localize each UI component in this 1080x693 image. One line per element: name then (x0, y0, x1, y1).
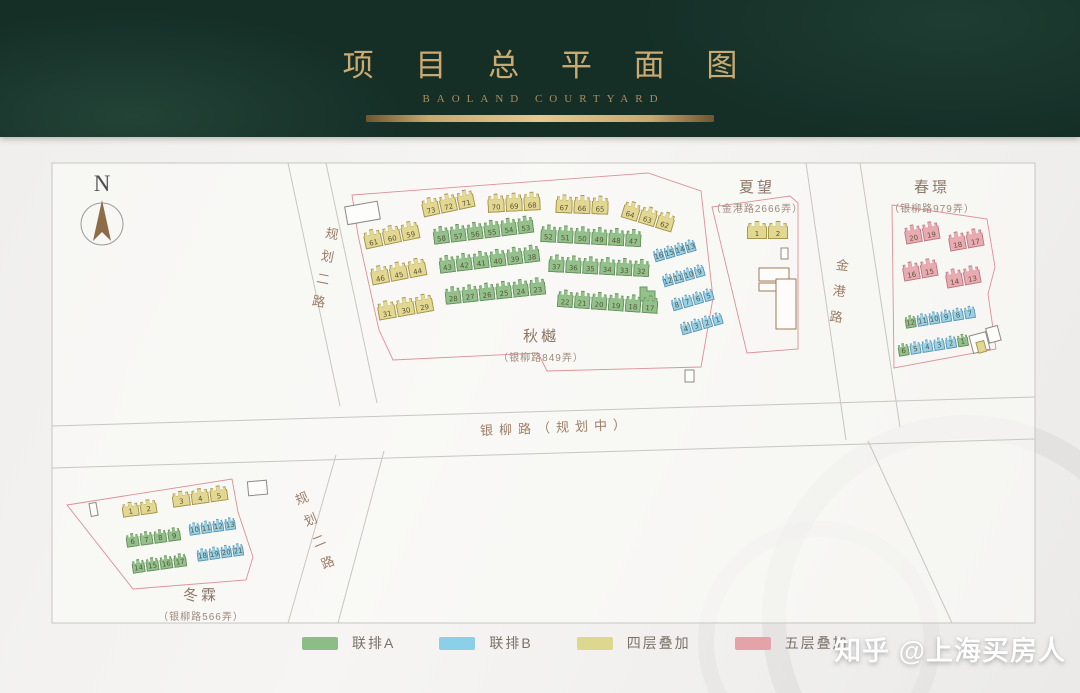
area-label-donglin: 冬霖 （银柳路566弄） (143, 584, 259, 623)
area-label-xiawang: 夏望 （金港路2666弄） (703, 176, 811, 215)
legend-item-4-storey-stack: 四层叠加 (577, 633, 691, 653)
area-label-qiuyue: 秋樾 （银柳路849弄） (486, 325, 596, 364)
area-name: 春璟 (878, 176, 986, 197)
area-label-chunjing: 春璟 （银柳路979弄） (878, 176, 986, 215)
area-name: 夏望 (703, 176, 811, 197)
legend-label: 联排B (489, 633, 532, 653)
legend: 联排A 联排B 四层叠加 五层叠加 (302, 633, 849, 653)
legend-swatch-green (302, 637, 338, 650)
site-plan-page: 项 目 总 平 面 图 BAOLAND COURTYARD (0, 0, 1080, 693)
legend-swatch-yellow (577, 637, 613, 650)
map-boundary (52, 163, 1035, 623)
legend-label: 四层叠加 (627, 633, 691, 653)
area-name: 冬霖 (143, 584, 259, 605)
north-label: N (76, 172, 128, 195)
north-arrow: N (76, 172, 128, 252)
legend-item-5-storey-stack: 五层叠加 (735, 633, 849, 653)
area-address: （银柳路566弄） (143, 608, 259, 623)
legend-item-lianpai-a: 联排A (302, 633, 395, 653)
legend-swatch-blue (439, 637, 475, 650)
legend-swatch-pink (735, 637, 771, 650)
area-address: （金港路2666弄） (703, 200, 811, 215)
legend-item-lianpai-b: 联排B (439, 633, 532, 653)
watermark: 知乎 @上海买房人 (834, 629, 1066, 668)
area-name: 秋樾 (486, 325, 596, 346)
legend-label: 联排A (352, 633, 395, 653)
area-address: （银柳路849弄） (486, 349, 596, 364)
area-address: （银柳路979弄） (878, 200, 986, 215)
compass-icon (78, 195, 126, 247)
